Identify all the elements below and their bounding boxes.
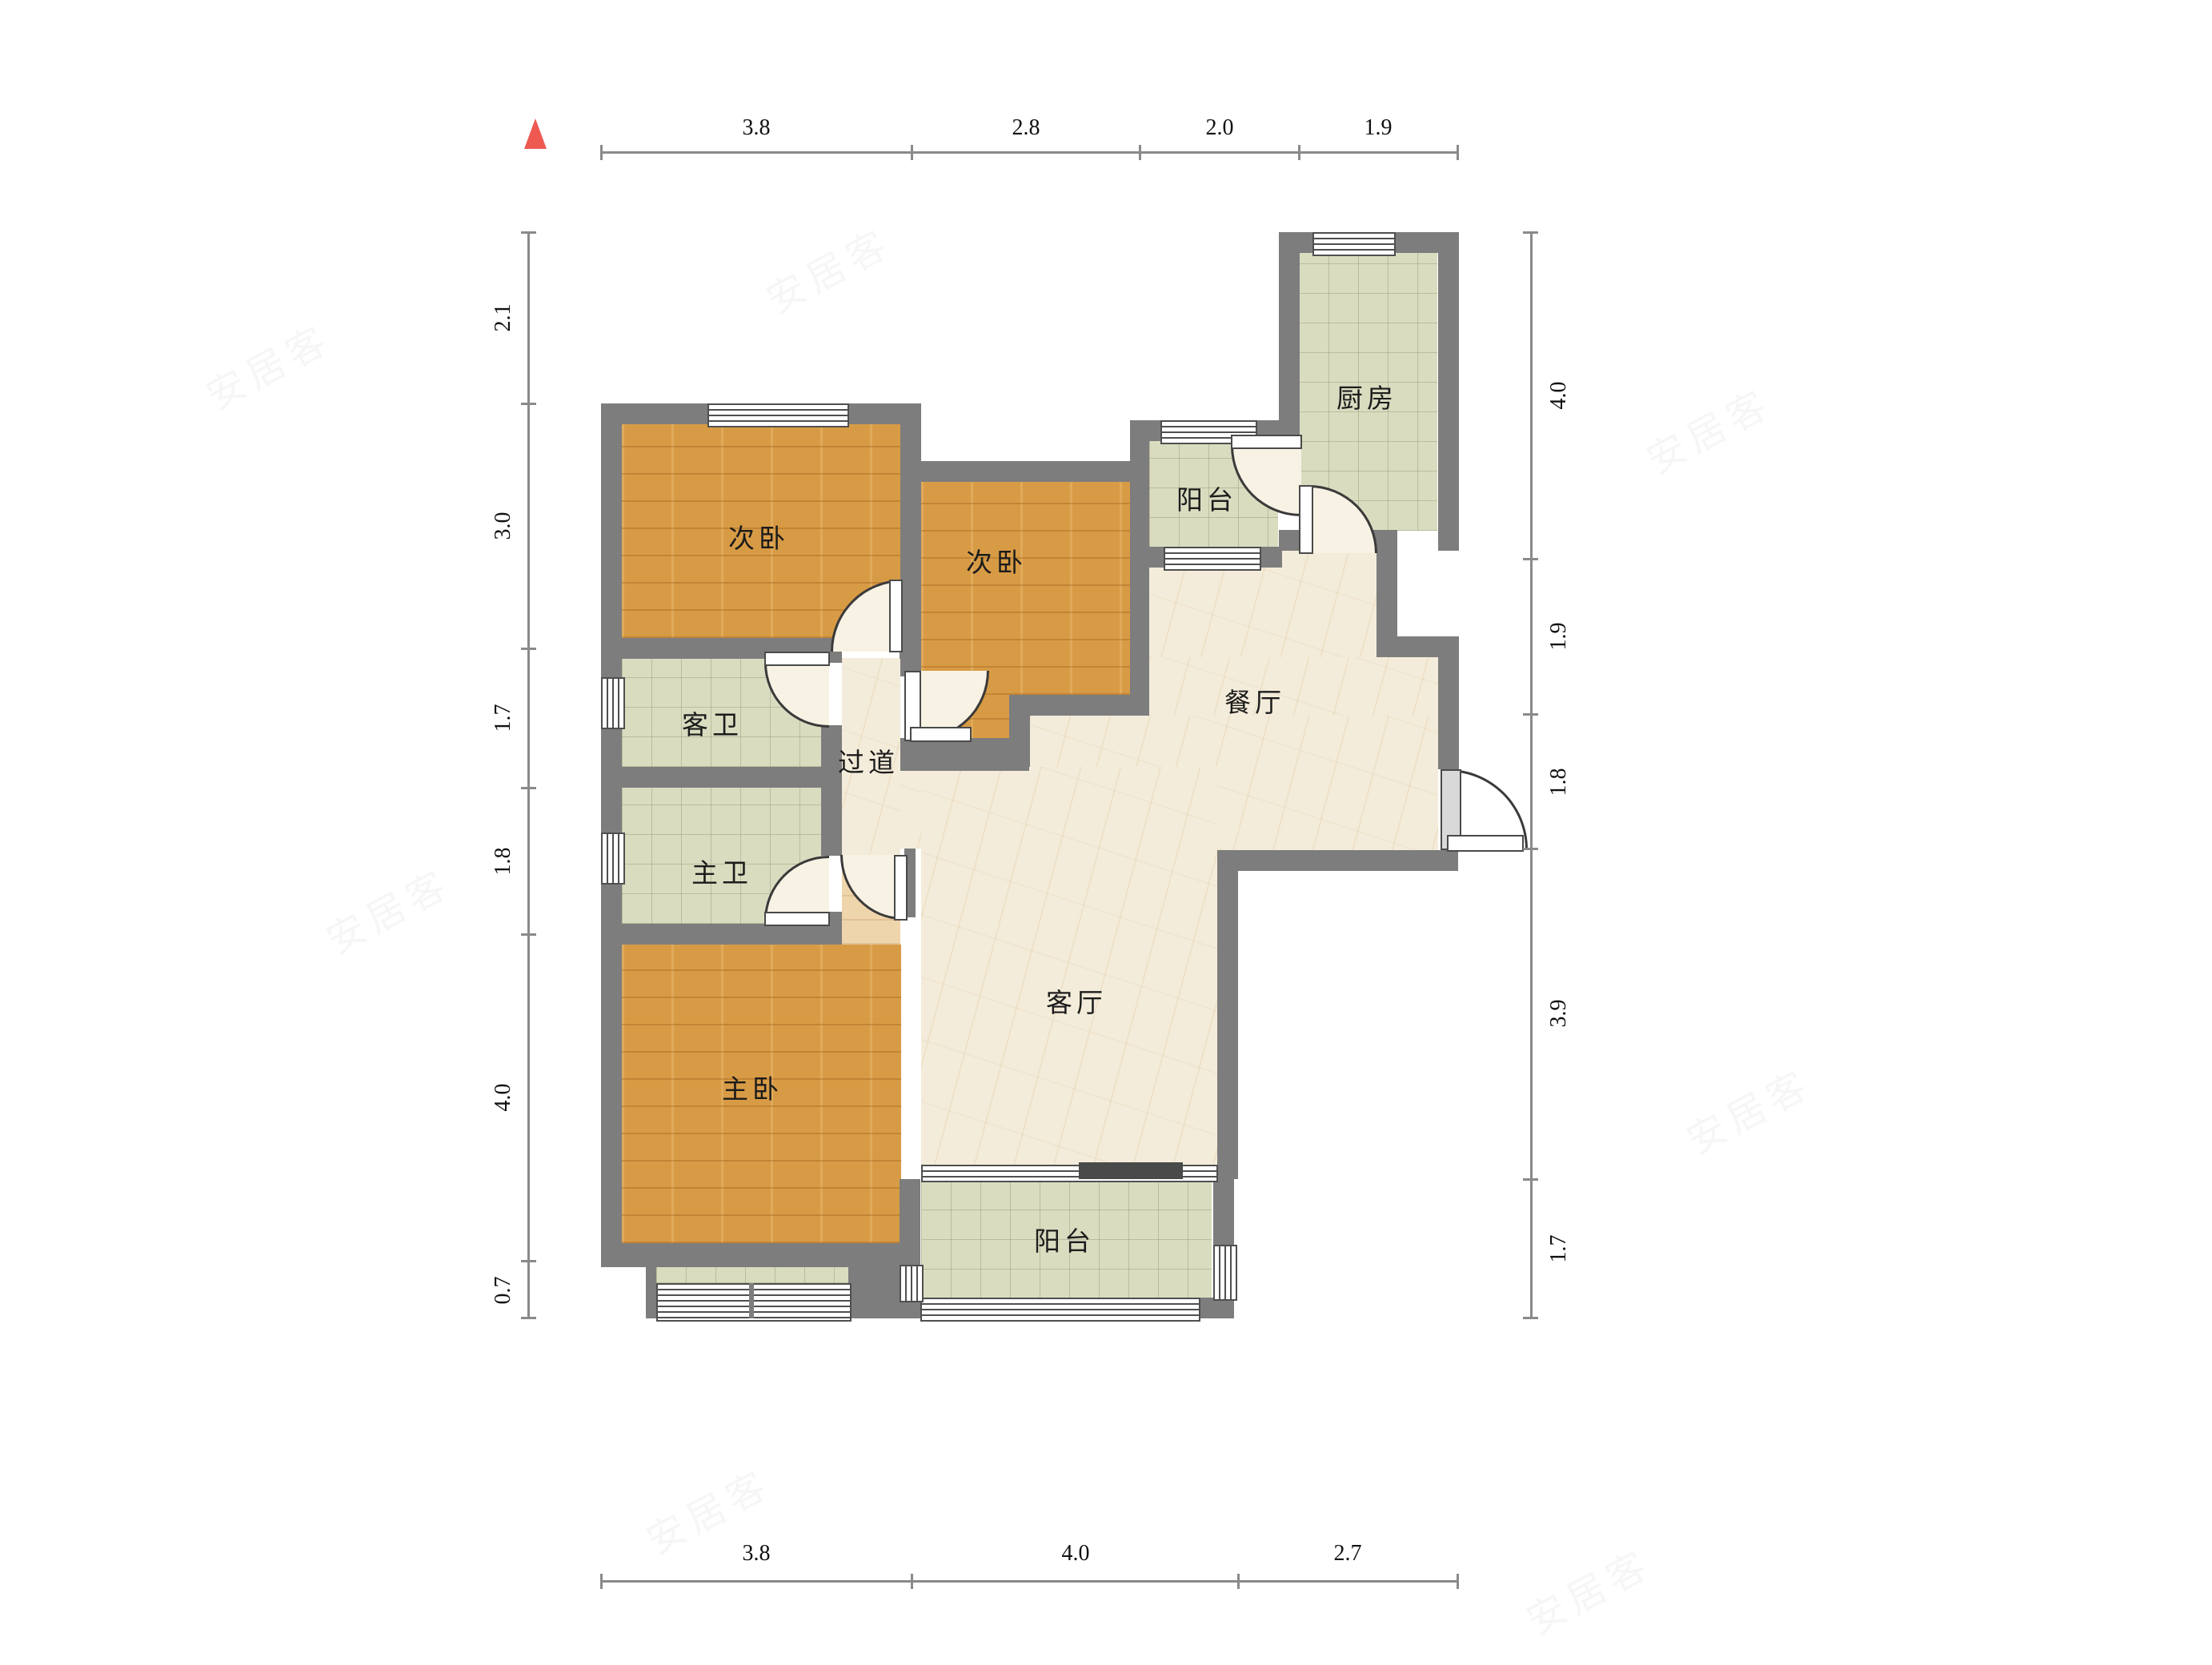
room-label-master-bathroom: 主卫 — [691, 852, 752, 890]
wall — [1258, 547, 1282, 568]
dim-tick — [1523, 558, 1538, 560]
room-label-bedroom-second-mid: 次卧 — [966, 541, 1027, 580]
watermark-text: 安居客 — [194, 308, 339, 421]
floor-dining-room — [1149, 657, 1438, 716]
door-leaf — [894, 855, 908, 921]
dim-value: 2.0 — [1206, 115, 1234, 141]
dim-tick — [521, 787, 536, 789]
wall — [1130, 440, 1149, 716]
room-label-hallway: 过道 — [838, 741, 899, 780]
door-leaf — [1231, 435, 1302, 449]
wall — [900, 403, 921, 676]
window — [900, 1265, 924, 1302]
dim-value: 1.9 — [1546, 623, 1572, 651]
wall — [601, 767, 842, 788]
wall — [646, 1267, 656, 1318]
window — [920, 1298, 1200, 1322]
dim-line-top — [601, 151, 1458, 154]
floor-bedroom-second-mid — [921, 481, 1130, 695]
dim-value: 2.7 — [1334, 1541, 1362, 1567]
watermark-text: 安居客 — [1515, 1533, 1660, 1646]
room-label-balcony-bottom: 阳台 — [1034, 1220, 1095, 1258]
dim-tick — [1523, 713, 1538, 716]
room-label-balcony-top: 阳台 — [1176, 479, 1237, 517]
watermark-text: 安居客 — [315, 853, 459, 965]
dim-value: 4.0 — [491, 1084, 516, 1112]
dim-value: 2.1 — [491, 304, 516, 332]
dim-value: 1.8 — [491, 848, 516, 876]
dim-value: 3.8 — [743, 115, 771, 141]
wall — [1009, 695, 1149, 716]
door-sill — [910, 727, 972, 742]
dim-tick — [1523, 231, 1538, 234]
wall — [900, 1179, 920, 1265]
dim-tick — [521, 1260, 536, 1262]
wall — [900, 461, 1149, 482]
dim-value: 3.9 — [1546, 1000, 1572, 1028]
wall — [1217, 850, 1238, 1179]
door-leaf — [764, 652, 830, 666]
window — [1312, 232, 1396, 256]
window — [1213, 1245, 1237, 1301]
north-arrow-icon — [524, 118, 547, 149]
floor-bay-window — [656, 1267, 848, 1283]
wall — [900, 638, 921, 659]
room-label-master-bedroom: 主卧 — [722, 1068, 783, 1106]
wall — [1149, 547, 1164, 568]
dim-tick — [1457, 1574, 1459, 1589]
wall — [1217, 850, 1458, 871]
dim-tick — [521, 648, 536, 650]
dim-line-bottom — [601, 1580, 1458, 1583]
dim-value: 1.9 — [1364, 115, 1393, 141]
dim-tick — [1523, 848, 1538, 850]
wall — [848, 1243, 900, 1318]
wall — [1279, 232, 1300, 420]
dim-tick — [1298, 145, 1300, 160]
dim-tick — [521, 933, 536, 936]
window — [601, 677, 625, 729]
watermark-text: 安居客 — [1635, 372, 1780, 485]
door-leaf — [1299, 485, 1313, 554]
dim-tick — [600, 1574, 603, 1589]
floor-living-room — [921, 767, 1217, 1165]
room-label-living-room: 客厅 — [1046, 981, 1107, 1020]
wall — [1438, 636, 1459, 769]
balcony-door-lintel — [1079, 1162, 1183, 1179]
room-label-guest-bathroom: 客卫 — [682, 704, 743, 742]
dim-tick — [911, 145, 913, 160]
dim-tick — [1523, 1317, 1538, 1319]
dim-value: 0.7 — [491, 1277, 516, 1305]
dim-value: 1.7 — [491, 704, 516, 732]
dim-value: 1.7 — [1546, 1235, 1572, 1263]
wall — [1213, 1179, 1234, 1245]
dim-tick — [521, 231, 536, 234]
wall — [601, 924, 842, 945]
door-leaf — [889, 580, 903, 652]
dim-line-right — [1530, 232, 1533, 1318]
dim-value: 2.8 — [1012, 115, 1040, 141]
window — [601, 832, 625, 885]
dim-value: 4.0 — [1062, 1541, 1090, 1567]
dim-tick — [1139, 145, 1141, 160]
room-label-dining-room: 餐厅 — [1224, 681, 1285, 720]
dim-tick — [600, 145, 603, 160]
floor-hallway — [900, 760, 921, 849]
window-mullion — [749, 1283, 754, 1318]
dim-tick — [911, 1574, 913, 1589]
watermark-text: 安居客 — [755, 212, 900, 325]
dim-tick — [1237, 1574, 1240, 1589]
dim-value: 3.0 — [491, 512, 516, 540]
dim-tick — [1457, 145, 1459, 160]
dim-line-left — [527, 232, 530, 1318]
window — [707, 403, 849, 427]
wall — [821, 788, 842, 856]
room-label-bedroom-second-left: 次卧 — [728, 517, 789, 556]
dim-tick — [1523, 1178, 1538, 1181]
room-label-kitchen: 厨房 — [1336, 377, 1397, 415]
door-leaf — [764, 912, 830, 926]
window — [1164, 547, 1261, 571]
window-bay — [656, 1283, 852, 1322]
dim-value: 3.8 — [743, 1541, 771, 1567]
dim-tick — [521, 403, 536, 405]
entry-door-threshold — [1447, 835, 1524, 852]
wall — [1009, 716, 1030, 767]
dim-tick — [521, 1317, 536, 1319]
wall — [1438, 232, 1459, 551]
watermark-text: 安居客 — [1675, 1053, 1820, 1165]
wall — [601, 1243, 848, 1267]
dim-value: 1.8 — [1546, 768, 1572, 796]
dim-value: 4.0 — [1546, 382, 1572, 410]
